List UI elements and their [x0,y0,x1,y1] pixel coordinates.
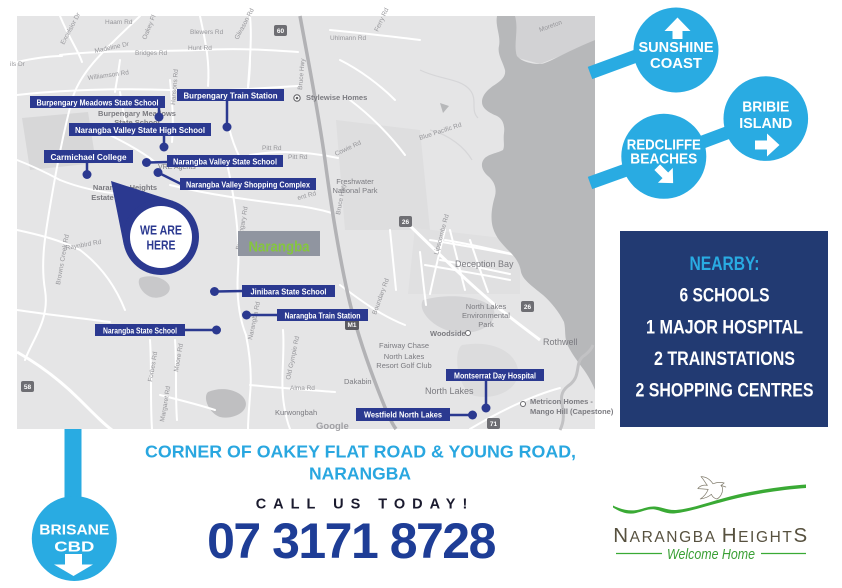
svg-text:Narangba State School: Narangba State School [103,326,177,336]
svg-text:BRISANE: BRISANE [39,521,109,538]
svg-text:26: 26 [402,219,410,226]
svg-text:SUNSHINE: SUNSHINE [639,39,714,56]
svg-text:ils Dr: ils Dr [10,61,26,68]
svg-text:Carmichael College: Carmichael College [51,152,127,162]
svg-text:North Lakes: North Lakes [425,386,474,396]
svg-text:07 3171 8728: 07 3171 8728 [207,513,496,569]
svg-text:Pitt Rd: Pitt Rd [262,145,282,152]
svg-text:Environmental: Environmental [462,311,510,320]
svg-text:Bridges Rd: Bridges Rd [135,50,168,57]
svg-text:Pitt Rd: Pitt Rd [288,154,308,161]
svg-text:Westfield North Lakes: Westfield North Lakes [364,410,442,420]
svg-text:North Lakes: North Lakes [384,352,425,361]
svg-text:2 TRAINSTATIONS: 2 TRAINSTATIONS [654,349,795,370]
svg-text:BRIBIE: BRIBIE [742,99,789,116]
svg-text:60: 60 [277,28,285,35]
svg-text:North Lakes: North Lakes [466,302,507,311]
svg-text:CORNER OF OAKEY FLAT ROAD & YO: CORNER OF OAKEY FLAT ROAD & YOUNG ROAD, [145,442,576,462]
svg-text:Montserrat Day Hospital: Montserrat Day Hospital [454,371,536,381]
svg-text:2 SHOPPING CENTRES: 2 SHOPPING CENTRES [636,381,814,402]
svg-text:26: 26 [524,304,532,311]
svg-text:Narangba Valley Shopping Compl: Narangba Valley Shopping Complex [186,180,310,190]
svg-text:Park: Park [478,320,494,329]
svg-text:COAST: COAST [650,55,702,72]
svg-text:Woodside: Woodside [430,329,466,338]
svg-text:Narangba Valley State High Sch: Narangba Valley State High School [75,125,205,135]
svg-text:ISLAND: ISLAND [739,115,792,132]
svg-text:Alma Rd: Alma Rd [290,385,315,392]
svg-text:WE ARE: WE ARE [140,223,182,238]
svg-text:Deception Bay: Deception Bay [455,259,514,269]
svg-text:Stylewise Homes: Stylewise Homes [306,93,367,102]
svg-text:CBD: CBD [54,539,94,556]
svg-text:Burpengary Meadows State Schoo: Burpengary Meadows State School [37,98,159,108]
svg-text:Freshwater: Freshwater [336,177,374,186]
svg-text:58: 58 [24,384,32,391]
svg-text:Welcome Home: Welcome Home [667,546,755,563]
svg-text:Mango Hill (Capestone): Mango Hill (Capestone) [530,407,614,416]
svg-text:BEACHES: BEACHES [630,151,697,168]
svg-text:HERE: HERE [147,238,176,253]
svg-text:Rothwell: Rothwell [543,337,578,347]
svg-text:Dakabin: Dakabin [344,377,372,386]
svg-text:Kurwongbah: Kurwongbah [275,408,317,417]
svg-text:Narangba: Narangba [249,239,311,256]
svg-text:1 MAJOR HOSPITAL: 1 MAJOR HOSPITAL [646,318,803,339]
svg-text:NARANGBA: NARANGBA [309,464,411,484]
svg-text:Narangba Valley State School: Narangba Valley State School [173,157,277,167]
svg-text:Blewers Rd: Blewers Rd [190,29,224,36]
svg-text:71: 71 [490,421,498,428]
svg-text:Burpengary Meadows: Burpengary Meadows [98,109,176,118]
svg-text:6 SCHOOLS: 6 SCHOOLS [680,286,770,307]
svg-text:Jinibara State School: Jinibara State School [251,287,327,297]
svg-text:Metricon Homes -: Metricon Homes - [530,397,593,406]
svg-text:Fairway Chase: Fairway Chase [379,341,429,350]
svg-text:Narangba Train Station: Narangba Train Station [285,311,361,321]
svg-text:M1: M1 [347,322,356,329]
svg-text:Burpengary Train Station: Burpengary Train Station [184,91,278,101]
svg-text:NARANGBA HEIGHTS: NARANGBA HEIGHTS [613,524,809,547]
svg-text:Uhlmann Rd: Uhlmann Rd [330,35,367,42]
svg-text:Resort Golf Club: Resort Golf Club [376,361,431,370]
svg-text:National Park: National Park [332,186,377,195]
svg-text:Haam Rd: Haam Rd [105,19,133,26]
svg-text:Hunt Rd: Hunt Rd [188,45,212,52]
svg-text:CALL US TODAY!: CALL US TODAY! [256,497,475,513]
svg-text:NEARBY:: NEARBY: [690,254,760,275]
svg-text:Google: Google [316,421,349,432]
